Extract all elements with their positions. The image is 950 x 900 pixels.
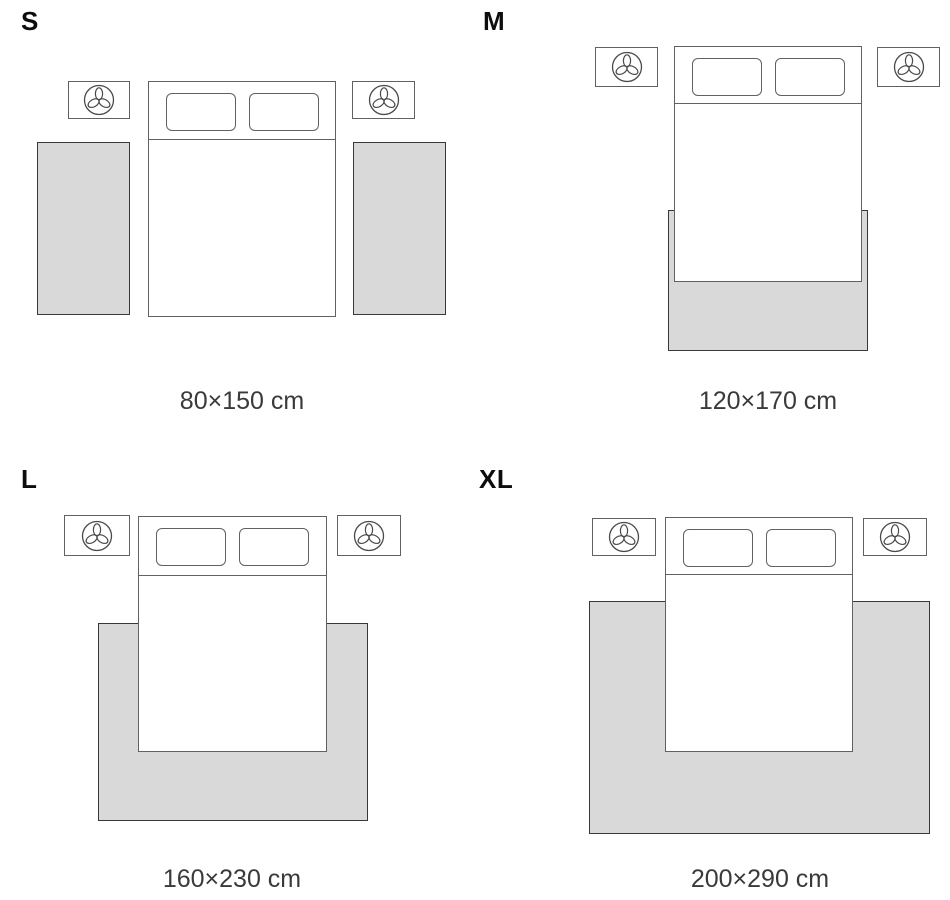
pillow [166, 93, 236, 131]
plant-icon [879, 521, 911, 553]
size-dimensions: 80×150 cm [137, 388, 347, 414]
size-letter: M [483, 8, 505, 34]
size-letter: S [21, 8, 39, 34]
size-dimensions: 200×290 cm [655, 866, 865, 892]
pillow [156, 528, 226, 566]
nightstand-right [337, 515, 401, 556]
bed [138, 516, 327, 752]
nightstand-left [595, 47, 658, 87]
nightstand-left [592, 518, 656, 556]
bed [674, 46, 862, 282]
size-dimensions: 160×230 cm [127, 866, 337, 892]
nightstand-right [863, 518, 927, 556]
rug-size-guide: S 80×150 cm M 120×170 cm [0, 0, 950, 900]
plant-icon [368, 84, 400, 116]
plant-icon [81, 520, 113, 552]
plant-icon [608, 521, 640, 553]
pillow [692, 58, 762, 96]
size-letter: L [21, 466, 37, 492]
size-letter: XL [479, 466, 513, 492]
pillow [249, 93, 319, 131]
pillow [766, 529, 836, 567]
pillow [239, 528, 309, 566]
bedside-rug-left [37, 142, 130, 315]
nightstand-right [877, 47, 940, 87]
nightstand-left [64, 515, 130, 556]
nightstand-left [68, 81, 130, 119]
nightstand-right [352, 81, 415, 119]
pillow [775, 58, 845, 96]
plant-icon [83, 84, 115, 116]
bedside-rug-right [353, 142, 446, 315]
size-dimensions: 120×170 cm [663, 388, 873, 414]
bed [148, 81, 336, 317]
plant-icon [893, 51, 925, 83]
plant-icon [611, 51, 643, 83]
bed [665, 517, 853, 752]
plant-icon [353, 520, 385, 552]
pillow [683, 529, 753, 567]
